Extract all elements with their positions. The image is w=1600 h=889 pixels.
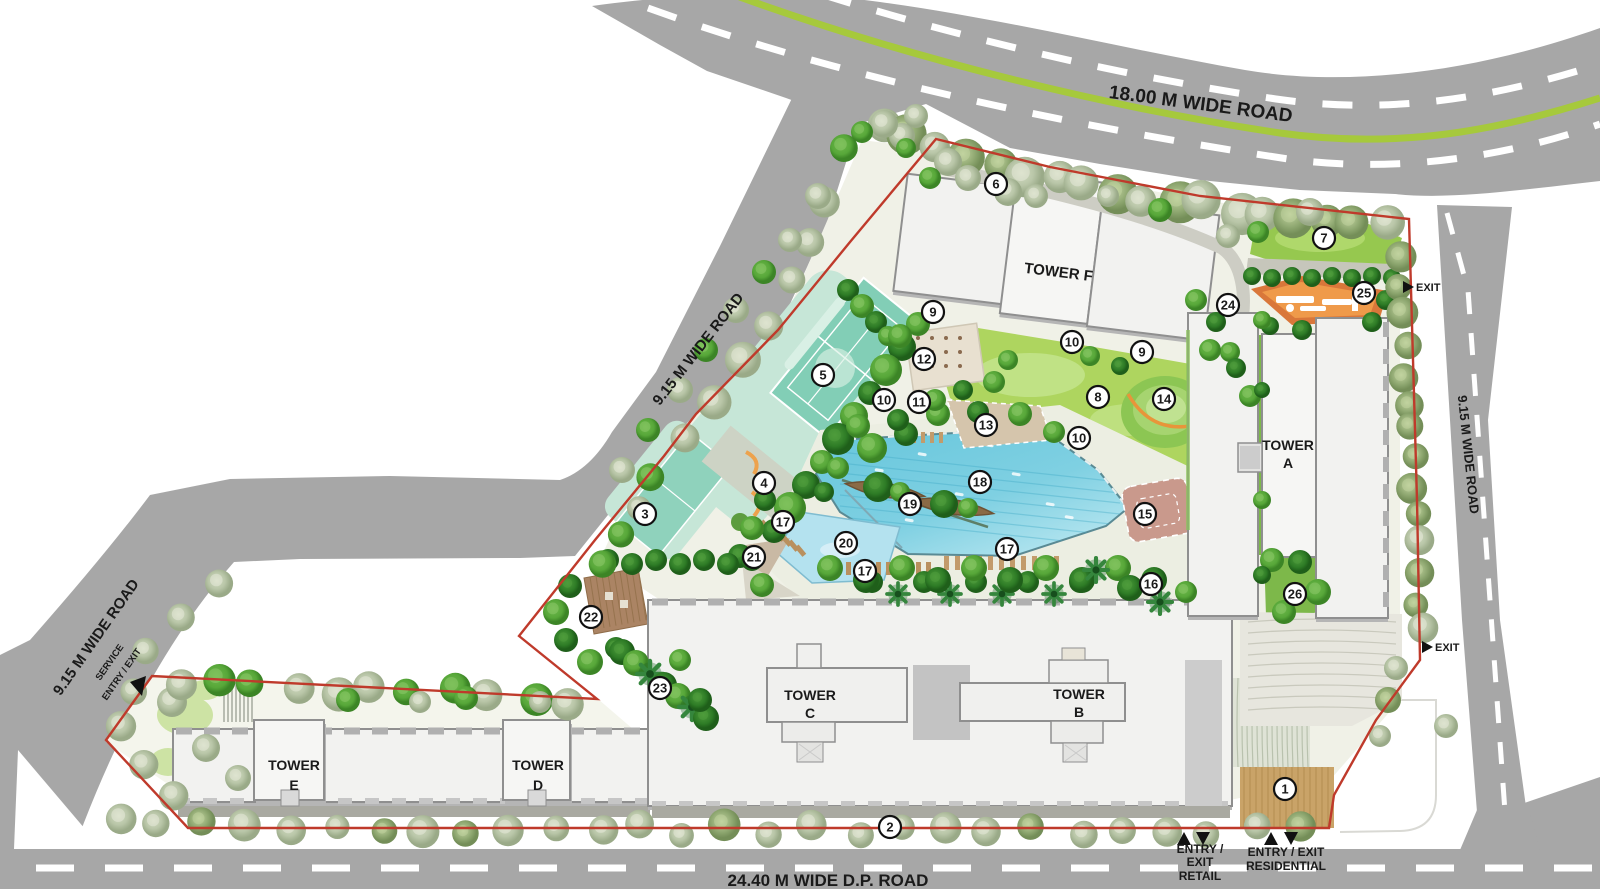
svg-text:TOWER: TOWER: [268, 757, 320, 773]
svg-text:RESIDENTIAL: RESIDENTIAL: [1246, 859, 1326, 873]
svg-text:ENTRY / EXIT: ENTRY / EXIT: [1248, 845, 1325, 859]
svg-text:EXIT: EXIT: [1416, 282, 1441, 294]
svg-text:26: 26: [1288, 587, 1302, 602]
svg-text:9: 9: [1138, 345, 1145, 360]
svg-text:16: 16: [1144, 577, 1158, 592]
svg-text:9: 9: [929, 305, 936, 320]
svg-text:10: 10: [1065, 335, 1079, 350]
svg-text:3: 3: [641, 507, 648, 522]
svg-text:19: 19: [903, 497, 917, 512]
svg-text:EXIT: EXIT: [1187, 855, 1214, 869]
svg-text:A: A: [1283, 455, 1293, 471]
svg-text:22: 22: [584, 610, 598, 625]
svg-text:10: 10: [877, 393, 891, 408]
svg-text:13: 13: [979, 418, 993, 433]
svg-text:RETAIL: RETAIL: [1179, 869, 1221, 883]
svg-text:6: 6: [992, 177, 999, 192]
svg-text:TOWER: TOWER: [512, 757, 564, 773]
svg-text:11: 11: [912, 395, 926, 410]
svg-text:8: 8: [1094, 390, 1101, 405]
svg-text:B: B: [1074, 704, 1084, 720]
svg-text:15: 15: [1138, 507, 1152, 522]
svg-text:17: 17: [1000, 542, 1014, 557]
svg-text:23: 23: [653, 681, 667, 696]
svg-text:7: 7: [1320, 231, 1327, 246]
svg-text:ENTRY /: ENTRY /: [1177, 842, 1224, 856]
svg-text:12: 12: [917, 352, 931, 367]
svg-text:2: 2: [886, 820, 893, 835]
svg-text:24.40 M WIDE D.P. ROAD: 24.40 M WIDE D.P. ROAD: [728, 871, 929, 889]
svg-text:4: 4: [760, 476, 768, 491]
svg-text:C: C: [805, 705, 815, 721]
svg-text:21: 21: [747, 550, 761, 565]
svg-text:18: 18: [973, 475, 987, 490]
svg-text:TOWER: TOWER: [1053, 686, 1105, 702]
svg-text:E: E: [289, 777, 298, 793]
svg-text:TOWER: TOWER: [784, 687, 836, 703]
svg-text:25: 25: [1357, 286, 1371, 301]
svg-text:EXIT: EXIT: [1435, 642, 1460, 654]
svg-text:1: 1: [1281, 782, 1288, 797]
svg-text:20: 20: [839, 536, 853, 551]
svg-text:5: 5: [819, 368, 826, 383]
svg-text:24: 24: [1221, 298, 1236, 313]
svg-text:D: D: [533, 777, 543, 793]
svg-text:10: 10: [1072, 431, 1086, 446]
svg-text:14: 14: [1157, 392, 1172, 407]
svg-text:17: 17: [776, 515, 790, 530]
svg-text:17: 17: [858, 564, 872, 579]
svg-text:TOWER: TOWER: [1262, 437, 1314, 453]
